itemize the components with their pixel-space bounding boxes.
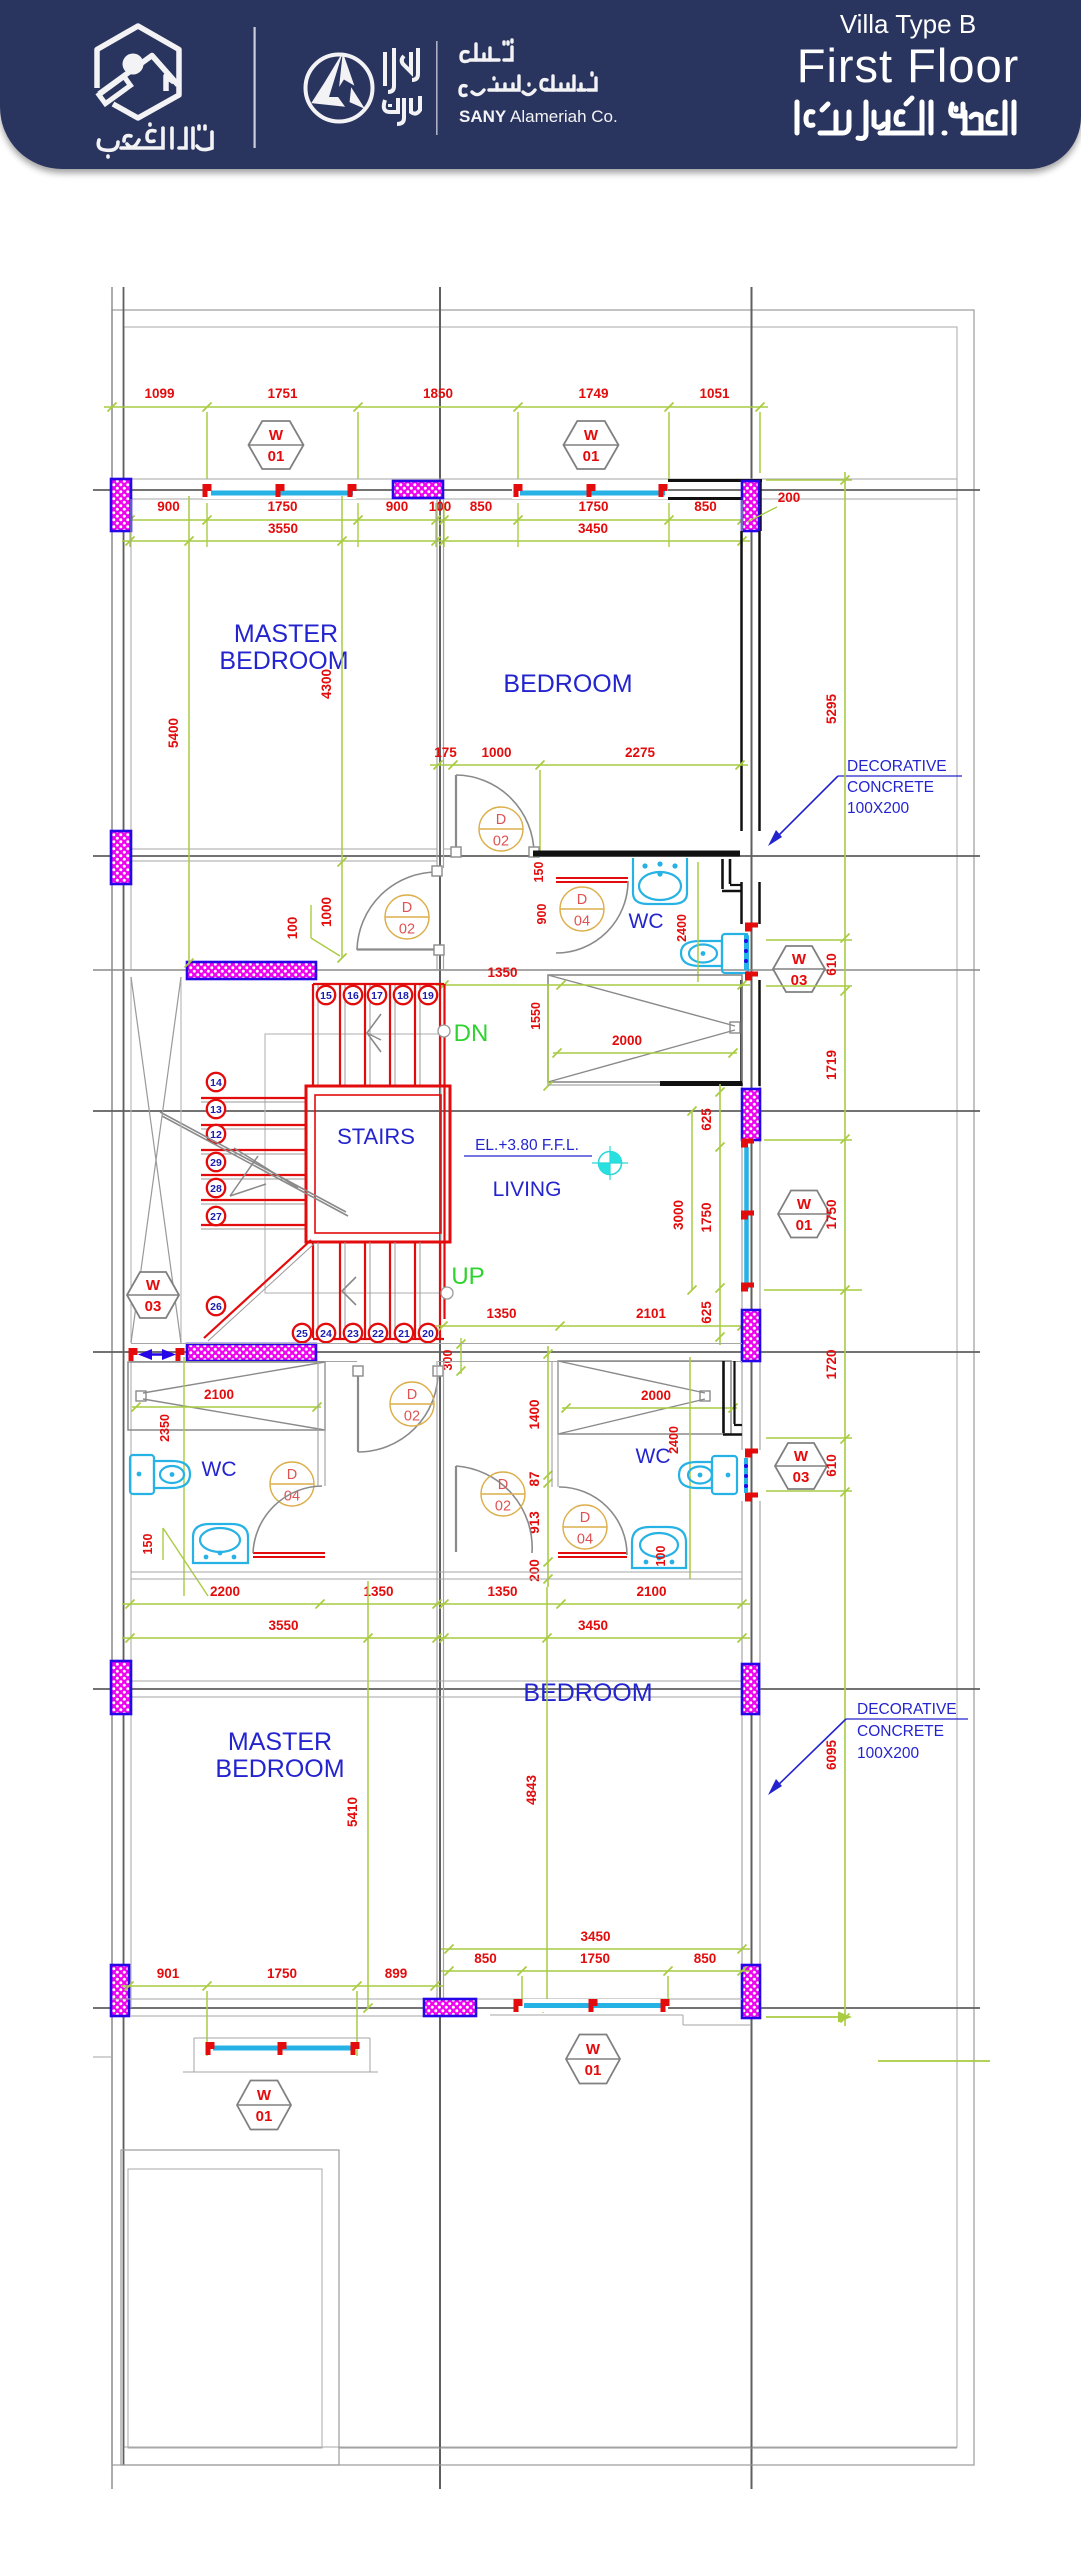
svg-text:610: 610 [824,953,839,976]
svg-text:1751: 1751 [267,386,298,401]
svg-text:4300: 4300 [319,669,334,699]
svg-text:100: 100 [654,1546,668,1567]
svg-text:DECORATIVE: DECORATIVE [857,1701,957,1718]
svg-text:01: 01 [796,1217,813,1234]
svg-text:850: 850 [474,1951,497,1966]
svg-text:1550: 1550 [529,1002,543,1030]
svg-text:02: 02 [493,834,509,850]
svg-text:14: 14 [210,1077,222,1089]
svg-text:900: 900 [386,499,409,514]
svg-text:5295: 5295 [824,693,839,724]
svg-text:18: 18 [397,990,409,1002]
svg-text:5400: 5400 [166,718,181,748]
svg-text:100: 100 [285,917,300,940]
svg-text:24: 24 [320,1328,332,1340]
svg-text:CONCRETE: CONCRETE [857,1723,944,1740]
svg-text:913: 913 [527,1511,542,1534]
svg-text:13: 13 [210,1104,222,1116]
svg-text:22: 22 [372,1328,384,1340]
svg-text:D: D [580,1510,590,1526]
svg-text:1099: 1099 [144,386,174,401]
svg-text:D: D [287,1467,297,1483]
svg-text:1051: 1051 [699,386,730,401]
svg-text:20: 20 [422,1328,434,1340]
svg-text:02: 02 [404,1409,420,1425]
svg-text:23: 23 [347,1328,359,1340]
svg-text:3550: 3550 [268,1618,298,1633]
svg-text:200: 200 [778,490,801,505]
svg-text:1719: 1719 [824,1050,839,1080]
svg-text:15: 15 [320,990,332,1002]
svg-text:D: D [407,1387,417,1403]
svg-text:87: 87 [527,1471,542,1486]
svg-text:D: D [402,900,412,916]
svg-text:625: 625 [699,1301,714,1324]
svg-text:2200: 2200 [210,1584,240,1599]
svg-text:1750: 1750 [267,499,297,514]
svg-text:175: 175 [434,745,457,760]
svg-text:3550: 3550 [268,521,298,536]
svg-text:2000: 2000 [612,1033,642,1048]
svg-text:150: 150 [532,862,546,883]
svg-text:1000: 1000 [481,745,511,760]
svg-text:2400: 2400 [675,914,689,942]
svg-text:W: W [792,951,807,968]
svg-text:29: 29 [210,1157,222,1169]
svg-text:WC: WC [636,1445,671,1468]
svg-text:2275: 2275 [625,745,656,760]
svg-text:BEDROOM: BEDROOM [523,1679,652,1707]
svg-text:DN: DN [454,1020,489,1047]
svg-text:16: 16 [347,990,359,1002]
svg-text:1720: 1720 [824,1349,839,1379]
svg-text:01: 01 [256,2108,273,2125]
svg-text:850: 850 [694,1951,717,1966]
svg-text:Villa Type B: Villa Type B [840,9,976,39]
svg-text:2000: 2000 [641,1388,671,1403]
svg-text:850: 850 [694,499,717,514]
svg-text:First Floor: First Floor [797,39,1020,92]
svg-text:625: 625 [699,1108,714,1131]
svg-text:150: 150 [141,1534,155,1555]
svg-text:D: D [496,812,506,828]
svg-text:W: W [146,1277,161,1294]
svg-text:2100: 2100 [204,1387,234,1402]
svg-text:901: 901 [157,1966,180,1981]
svg-text:01: 01 [268,448,285,465]
svg-text:25: 25 [296,1328,308,1340]
svg-text:STAIRS: STAIRS [337,1124,415,1149]
svg-text:02: 02 [399,922,415,938]
svg-text:WC: WC [202,1458,237,1481]
svg-text:WC: WC [629,910,664,933]
svg-text:1350: 1350 [487,965,517,980]
svg-text:1750: 1750 [578,499,608,514]
svg-text:02: 02 [495,1499,511,1515]
svg-text:899: 899 [385,1966,408,1981]
svg-text:03: 03 [145,1298,162,1315]
svg-text:1750: 1750 [699,1202,714,1232]
svg-text:MASTER: MASTER [234,620,338,648]
svg-text:100: 100 [429,499,452,514]
svg-text:2100: 2100 [636,1584,666,1599]
svg-text:2400: 2400 [667,1426,681,1454]
svg-text:DECORATIVE: DECORATIVE [847,758,947,775]
svg-text:01: 01 [585,2062,602,2079]
svg-text:BEDROOM: BEDROOM [215,1755,344,1783]
svg-text:1350: 1350 [487,1584,517,1599]
svg-text:26: 26 [210,1301,222,1313]
svg-text:EL.+3.80 F.F.L.: EL.+3.80 F.F.L. [475,1137,579,1154]
svg-text:1400: 1400 [527,1399,542,1429]
svg-text:1000: 1000 [319,897,334,927]
svg-text:19: 19 [422,990,434,1002]
svg-text:200: 200 [527,1559,542,1582]
svg-text:3000: 3000 [671,1200,686,1230]
svg-text:3450: 3450 [578,1618,608,1633]
svg-text:04: 04 [574,914,590,930]
svg-text:04: 04 [577,1532,593,1548]
svg-text:3450: 3450 [580,1929,610,1944]
svg-text:W: W [269,427,284,444]
svg-text:3450: 3450 [578,521,608,536]
svg-text:BEDROOM: BEDROOM [503,670,632,698]
svg-text:2350: 2350 [158,1414,172,1442]
svg-text:1350: 1350 [486,1306,516,1321]
svg-text:D: D [577,892,587,908]
svg-text:900: 900 [535,904,549,925]
svg-text:6095: 6095 [824,1739,839,1770]
svg-text:610: 610 [824,1454,839,1477]
svg-text:W: W [797,1196,812,1213]
svg-text:W: W [257,2087,272,2104]
svg-text:03: 03 [793,1469,810,1486]
svg-text:100X200: 100X200 [847,800,909,817]
svg-text:1850: 1850 [423,386,453,401]
svg-text:4843: 4843 [524,1774,539,1805]
svg-text:SANY Alameriah Co.: SANY Alameriah Co. [459,107,618,126]
svg-text:1750: 1750 [267,1966,297,1981]
svg-text:01: 01 [583,448,600,465]
svg-text:W: W [794,1448,809,1465]
svg-text:27: 27 [210,1211,222,1223]
svg-text:1749: 1749 [578,386,608,401]
svg-text:W: W [584,427,599,444]
svg-text:900: 900 [157,499,180,514]
svg-text:17: 17 [371,990,383,1002]
svg-text:LIVING: LIVING [493,1178,562,1201]
svg-text:MASTER: MASTER [228,1728,332,1756]
svg-text:D: D [498,1477,508,1493]
svg-text:UP: UP [451,1263,484,1290]
svg-text:21: 21 [398,1328,410,1340]
svg-text:5410: 5410 [345,1797,360,1827]
svg-text:1750: 1750 [580,1951,610,1966]
svg-text:W: W [586,2041,601,2058]
svg-text:100X200: 100X200 [857,1745,919,1762]
svg-text:850: 850 [470,499,493,514]
svg-text:28: 28 [210,1183,222,1195]
svg-text:2101: 2101 [636,1306,667,1321]
svg-text:1750: 1750 [824,1199,839,1229]
svg-text:CONCRETE: CONCRETE [847,779,934,796]
